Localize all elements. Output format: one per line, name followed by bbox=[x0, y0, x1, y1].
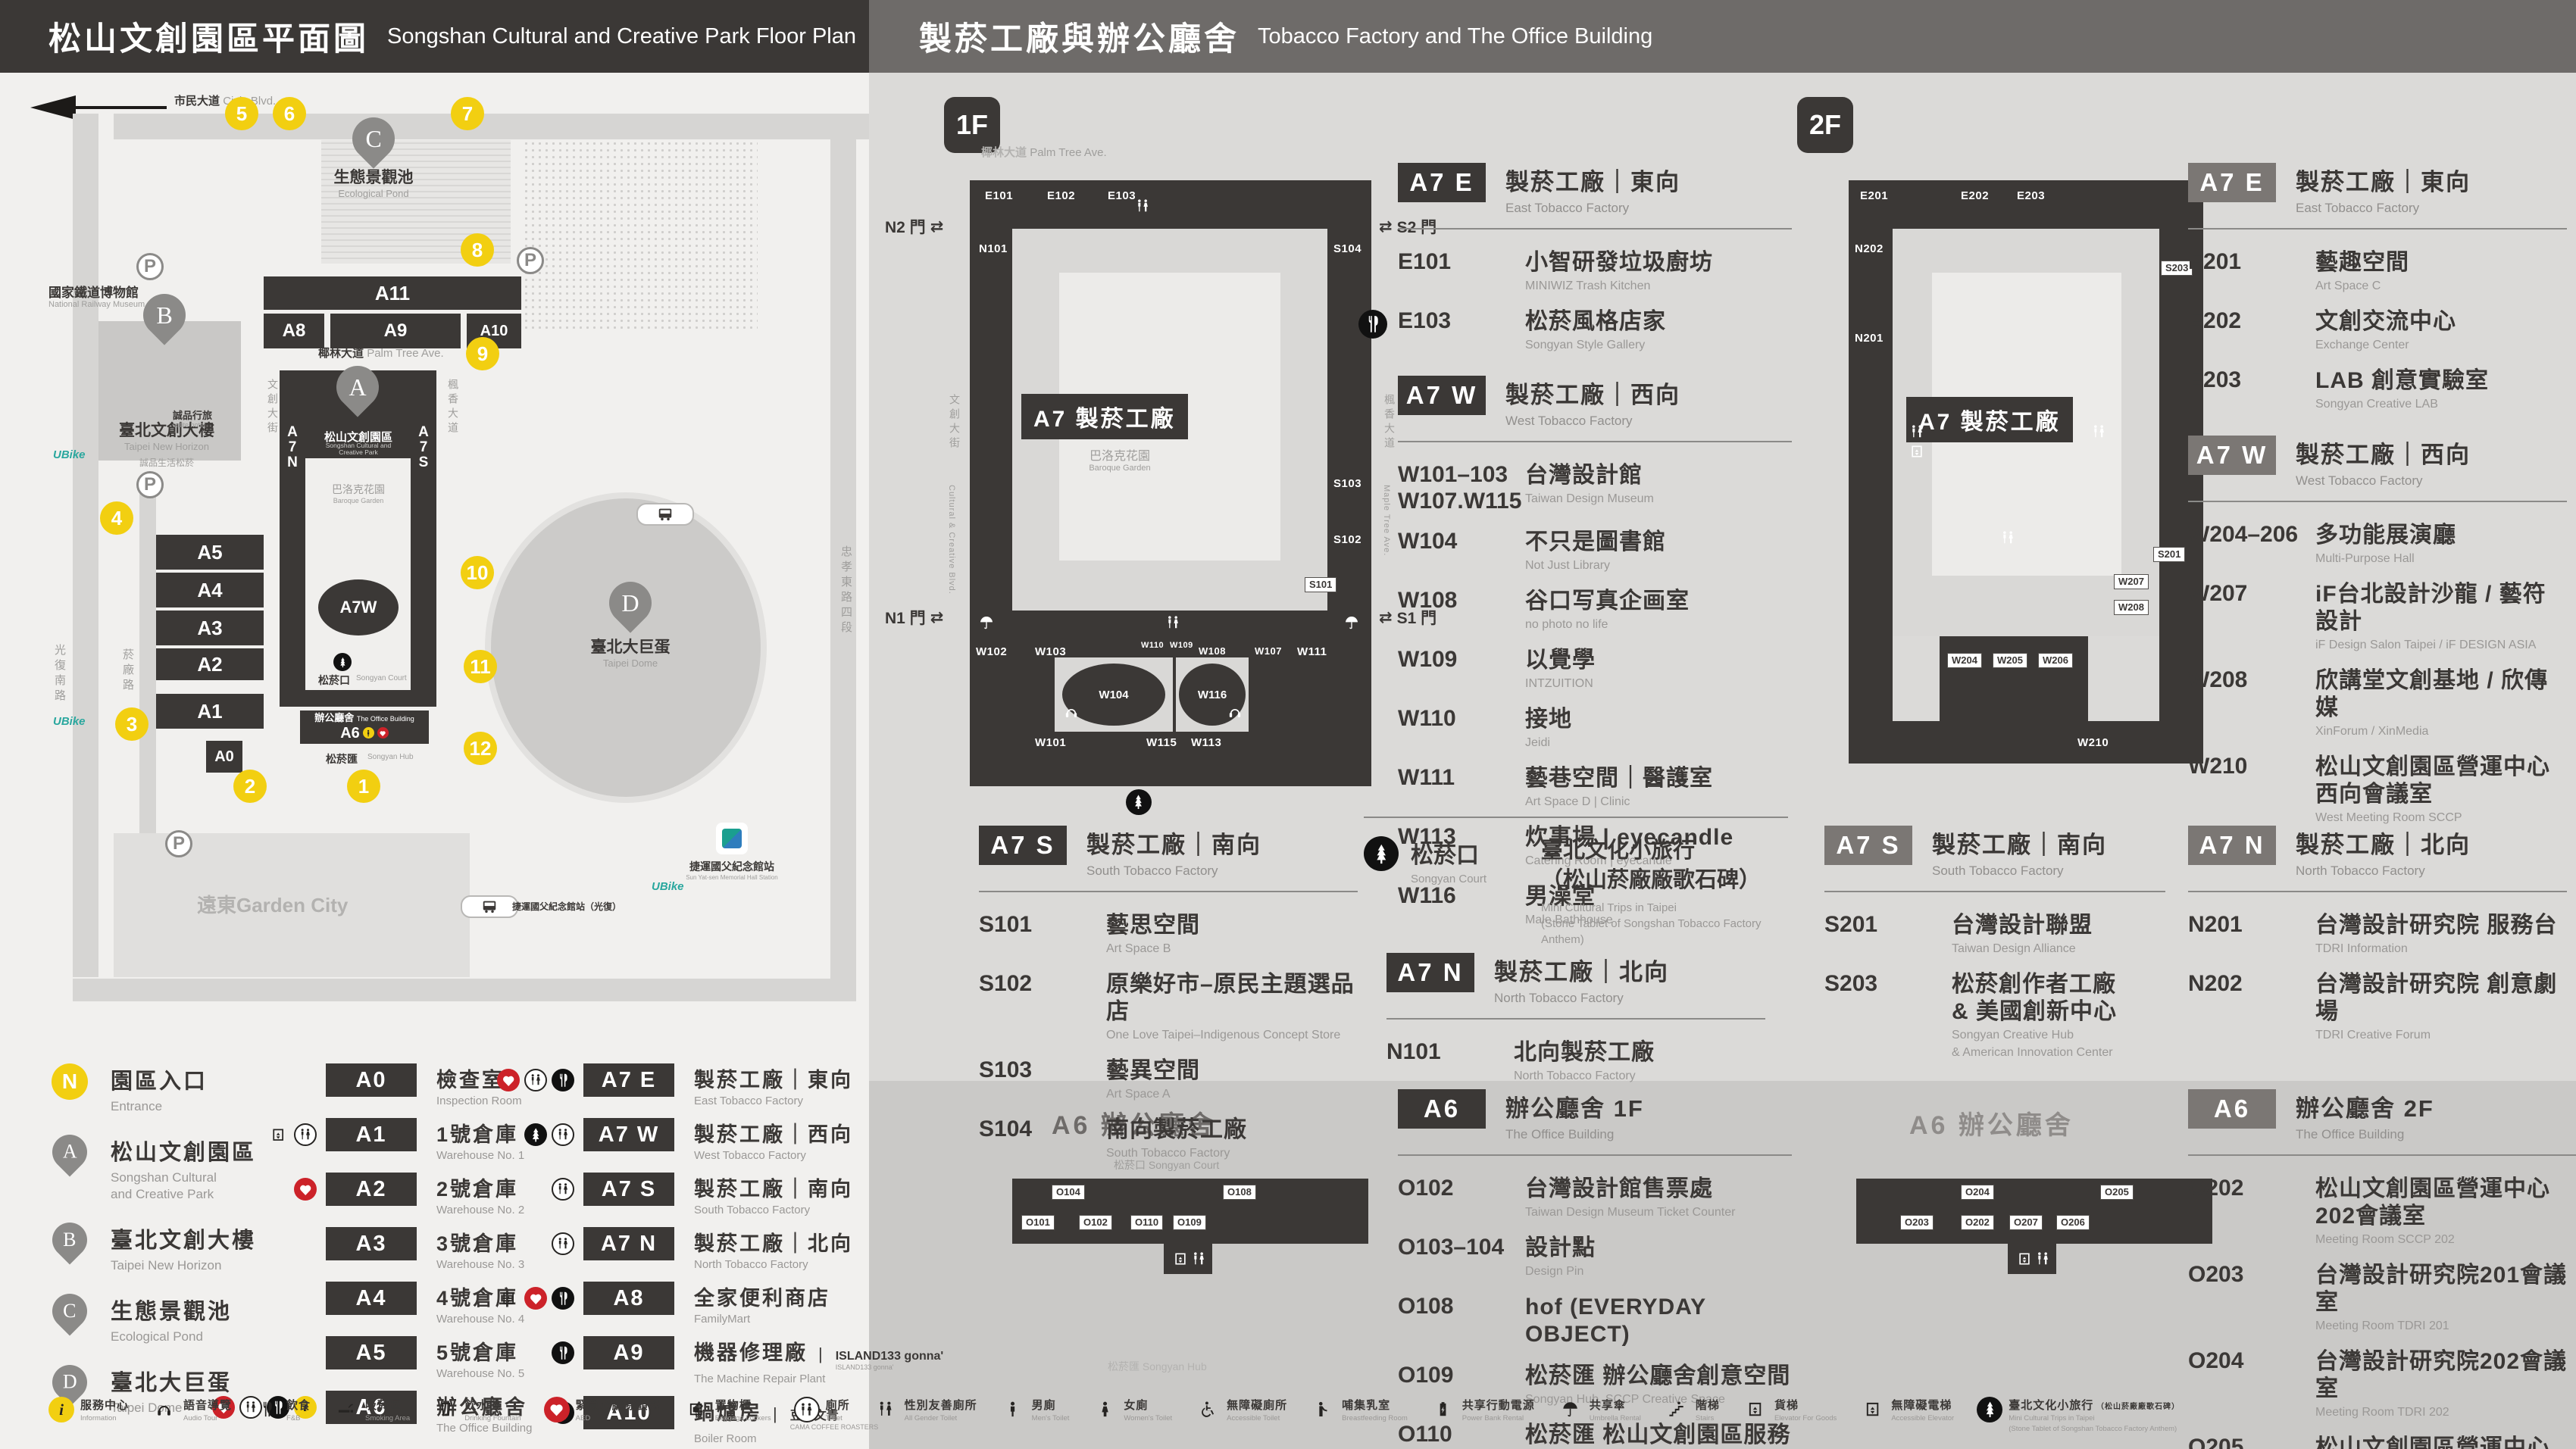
legend-building-en: FamilyMart bbox=[694, 1313, 830, 1326]
room-name-en: TDRI Creative Forum bbox=[2315, 1028, 2567, 1043]
plan1f-baroque-en: Baroque Garden bbox=[1067, 464, 1173, 473]
room-name: hof (EVERYDAY OBJECT) bbox=[1525, 1294, 1792, 1348]
legend-building-text: 全家便利商店FamilyMart bbox=[694, 1282, 830, 1326]
room-name-en: TDRI Information bbox=[2315, 942, 2557, 957]
map-building-a7n: A 7 N bbox=[280, 402, 305, 493]
section-title-en: East Tobacco Factory bbox=[1505, 201, 1680, 216]
list-item: E101小智研發垃圾廚坊MINIWIZ Trash Kitchen bbox=[1398, 249, 1792, 294]
info-icon: i bbox=[48, 1397, 74, 1422]
nursing-icon bbox=[1310, 1397, 1336, 1422]
label-pond-zh: 生態景觀池 bbox=[305, 165, 442, 188]
entrance-3: 3 bbox=[115, 707, 148, 741]
room-code: O202 bbox=[2188, 1176, 2315, 1248]
room-name-zh: 台灣設計研究院202會議室 bbox=[2315, 1348, 2576, 1403]
section-title-en: East Tobacco Factory bbox=[2296, 201, 2471, 216]
strip-item-text: 男廁Men's Toilet bbox=[1032, 1397, 1070, 1423]
legend-building-zh: 製菸工廠｜東向 bbox=[694, 1063, 853, 1093]
room-name-zh: 松菸創作者工廠 bbox=[1952, 971, 2117, 998]
list-item: W109以覺學INTZUITION bbox=[1398, 647, 1792, 692]
room-name: 台灣設計研究院 服務台TDRI Information bbox=[2315, 912, 2557, 957]
section-badge: A7 E bbox=[2188, 163, 2276, 202]
court-icon bbox=[524, 1123, 547, 1146]
room-name-en: Art Space D | Clinic bbox=[1525, 795, 1713, 810]
strip-item-text: 共享傘Umbrella Rental bbox=[1590, 1397, 1641, 1423]
list-item: W111藝巷空間｜醫護室Art Space D | Clinic bbox=[1398, 765, 1792, 810]
room-code: W207 bbox=[2188, 581, 2315, 653]
legend-building-en: The Machine Repair Plant bbox=[694, 1372, 943, 1385]
court-line-zh: 臺北文化小旅行（松山菸廠廠歌石碑） bbox=[1541, 836, 1788, 895]
room-name-zh: 欣講堂文創基地 / 欣傳媒 bbox=[2315, 667, 2567, 722]
garden-city-label: 遠東Garden City bbox=[197, 890, 348, 918]
map-building-a7w: A7W bbox=[318, 579, 399, 635]
list-item: W108谷口写真企画室no photo no life bbox=[1398, 588, 1792, 632]
map-hub-en: Songyan Hub bbox=[367, 753, 414, 761]
room-label-box: O205 bbox=[2100, 1185, 2134, 1200]
room-label-box: W204 bbox=[1947, 653, 1982, 668]
legend-building-badge: A9 bbox=[583, 1336, 674, 1369]
strip-item-zh: 廁所 bbox=[826, 1397, 850, 1413]
section-divider bbox=[1398, 1154, 1792, 1156]
strip-item: 女廁Women's Toilet bbox=[1092, 1397, 1172, 1423]
entrance-4: 4 bbox=[100, 501, 133, 535]
room-label-box: O104 bbox=[1052, 1185, 1085, 1200]
strip-item-text: 吸菸區Smoking Area bbox=[365, 1397, 410, 1423]
room-name-zh: 台灣設計聯盟 bbox=[1952, 912, 2093, 939]
legend-place-zh: 園區入口 bbox=[111, 1063, 208, 1095]
room-name-en: Not Just Library bbox=[1525, 558, 1666, 573]
section-header: A7 W製菸工廠｜西向West Tobacco Factory bbox=[1398, 376, 1792, 429]
room-name-zh: 北向製菸工廠 bbox=[1514, 1039, 1655, 1066]
room-name-zh: 接地 bbox=[1525, 706, 1572, 733]
plan2f-east-wing bbox=[1849, 180, 2203, 229]
strip-item-zh: 女廁 bbox=[1124, 1397, 1172, 1413]
strip-item-en: Stairs bbox=[1696, 1414, 1720, 1423]
stairs-icon bbox=[1664, 1397, 1690, 1422]
legend-building-text: 製菸工廠｜南向South Tobacco Factory bbox=[694, 1173, 853, 1216]
list-item: O102台灣設計館售票處Taiwan Design Museum Ticket … bbox=[1398, 1176, 1792, 1220]
strip-item-text: 緊急心臟除顫器AED bbox=[576, 1397, 661, 1423]
strip-item-en: Information bbox=[80, 1414, 129, 1423]
section-header: A7 N製菸工廠｜北向North Tobacco Factory bbox=[1386, 953, 1765, 1006]
map-building-a9: A9 bbox=[330, 314, 461, 348]
strip-item-text: 女廁Women's Toilet bbox=[1124, 1397, 1172, 1423]
strip-item-text: 無障礙廁所Accessible Toilet bbox=[1227, 1397, 1287, 1423]
label-eslite-hotel-zh: 誠品行旅 bbox=[173, 408, 212, 422]
strip-item: 緊急心臟除顫器AED bbox=[544, 1397, 661, 1423]
room-name: 谷口写真企画室no photo no life bbox=[1525, 588, 1690, 632]
room-name: 以覺學INTZUITION bbox=[1525, 647, 1596, 692]
section-a7s-1f: A7 S製菸工廠｜南向South Tobacco FactoryS101藝思空間… bbox=[979, 826, 1358, 1176]
room-name: 藝思空間Art Space B bbox=[1106, 912, 1200, 957]
section-title-zh: 辦公廳舍 1F bbox=[1505, 1089, 1644, 1123]
room-label: N101 bbox=[979, 242, 1008, 255]
legend-building-badge: A1 bbox=[326, 1118, 417, 1151]
section-divider bbox=[1386, 1018, 1765, 1020]
strip-item: i服務中心Information bbox=[48, 1397, 129, 1423]
room-name-en: Art Space B bbox=[1106, 942, 1200, 957]
room-name: 台灣設計聯盟Taiwan Design Alliance bbox=[1952, 912, 2093, 957]
room-code: W108 bbox=[1398, 588, 1525, 632]
section-title: 製菸工廠｜西向West Tobacco Factory bbox=[1505, 376, 1680, 429]
map-building-a4: A4 bbox=[156, 573, 264, 607]
list-item: E103松菸風格店家Songyan Style Gallery bbox=[1398, 308, 1792, 353]
elevator-icon bbox=[1173, 1251, 1188, 1266]
section-title-zh: 製菸工廠｜東向 bbox=[1505, 163, 1680, 197]
section-header: A7 N製菸工廠｜北向North Tobacco Factory bbox=[2188, 826, 2567, 879]
strip-item: 語音導覽Audio Tour bbox=[152, 1397, 232, 1423]
aed-icon bbox=[377, 727, 389, 739]
strip-item-en: Toilet bbox=[826, 1414, 850, 1423]
room-name-zh2: 西向會議室 bbox=[2315, 781, 2550, 808]
youbike-mark: UBike bbox=[53, 715, 86, 728]
room-label: W109 bbox=[1170, 641, 1193, 650]
legend-building-text: 製菸工廠｜西向West Tobacco Factory bbox=[694, 1118, 853, 1162]
section-title-zh: 製菸工廠｜北向 bbox=[1494, 953, 1669, 987]
section-a7s-2f: A7 S製菸工廠｜南向South Tobacco FactoryS201台灣設計… bbox=[1824, 826, 2165, 1075]
legend-building-en: East Tobacco Factory bbox=[694, 1095, 853, 1107]
section-title: 製菸工廠｜北向North Tobacco Factory bbox=[2296, 826, 2471, 879]
legend-building-en: North Tobacco Factory bbox=[694, 1258, 853, 1271]
room-code: W208 bbox=[2188, 667, 2315, 739]
strip-item-zh: 階梯 bbox=[1696, 1397, 1720, 1413]
section-badge: A7 E bbox=[1398, 163, 1486, 202]
room-label: E203 bbox=[2017, 189, 2045, 202]
room-label-box: O204 bbox=[1961, 1185, 1994, 1200]
strip-item-en: Audio Tour bbox=[183, 1414, 232, 1423]
entrance-10: 10 bbox=[461, 556, 494, 589]
map-baroque-en: Baroque Garden bbox=[314, 497, 403, 504]
section-header: A6辦公廳舍 2FThe Office Building bbox=[2188, 1089, 2576, 1142]
room-name: 松山文創園區營運中心202會議室Meeting Room SCCP 202 bbox=[2315, 1176, 2576, 1248]
section-title-en: West Tobacco Factory bbox=[2296, 473, 2471, 489]
section-title-zh: 辦公廳舍 2F bbox=[2296, 1089, 2434, 1123]
strip-item-zh: 置物櫃 bbox=[715, 1397, 771, 1413]
room-name: 小智研發垃圾廚坊MINIWIZ Trash Kitchen bbox=[1525, 249, 1713, 294]
room-code: S102 bbox=[979, 971, 1106, 1043]
legend-icon-cluster bbox=[470, 1118, 583, 1151]
strip-item-zh: 服務中心 bbox=[80, 1397, 129, 1413]
room-name-zh: 松菸匯 辦公廳舍創意空間 bbox=[1525, 1363, 1790, 1390]
list-item: W110接地Jeidi bbox=[1398, 706, 1792, 751]
legend-building-badge: A8 bbox=[583, 1282, 674, 1315]
room-label: S104 bbox=[1333, 242, 1361, 255]
section-divider bbox=[2188, 228, 2567, 230]
strip-item-en: Elevator For Goods bbox=[1774, 1414, 1837, 1423]
a6-2f-building bbox=[1856, 1179, 2212, 1244]
brand-separator: | bbox=[818, 1344, 825, 1364]
room-code: N201 bbox=[2188, 912, 2315, 957]
section-title: 辦公廳舍 1FThe Office Building bbox=[1505, 1089, 1644, 1142]
strip-item: 貨梯Elevator For Goods bbox=[1743, 1397, 1837, 1423]
room-name-zh: 以覺學 bbox=[1525, 647, 1596, 674]
info-icon bbox=[363, 727, 374, 739]
plan2f-big-label: A7 製菸工廠 bbox=[1906, 397, 2073, 442]
map-building-a3: A3 bbox=[156, 611, 264, 645]
room-name: 松菸創作者工廠& 美國創新中心Songyan Creative Hub& Ame… bbox=[1952, 971, 2117, 1060]
strip-item-zh: 緊急心臟除顫器 bbox=[576, 1397, 661, 1413]
room-code: W110 bbox=[1398, 706, 1525, 751]
list-item: O205松山文創園區營運中心201會議室Meeting Room SCCP 20… bbox=[2188, 1435, 2576, 1449]
legend-building-row: A7 E製菸工廠｜東向East Tobacco Factory bbox=[470, 1063, 943, 1107]
list-item: N201台灣設計研究院 服務台TDRI Information bbox=[2188, 912, 2567, 957]
strip-item-text: 階梯Stairs bbox=[1696, 1397, 1720, 1423]
strip-item-text: 飲水機Drinking Fountain bbox=[464, 1397, 521, 1423]
room-name-en: no photo no life bbox=[1525, 617, 1690, 632]
legend-pin: C bbox=[45, 1287, 94, 1336]
room-code: O203 bbox=[2188, 1262, 2315, 1334]
room-code: W204–206 bbox=[2188, 522, 2315, 567]
map-court-en: Songyan Court bbox=[356, 674, 407, 682]
room-name-zh: 松山文創園區營運中心201會議室 bbox=[2315, 1435, 2576, 1449]
legend-building-zh: 全家便利商店 bbox=[694, 1282, 830, 1311]
room-code: O205 bbox=[2188, 1435, 2315, 1449]
parking-icon: P bbox=[517, 247, 544, 274]
map-building-a0: A0 bbox=[206, 741, 242, 773]
room-label-box: W206 bbox=[2038, 653, 2073, 668]
label-mrt-exit: 捷運國父紀念館站（光復） bbox=[512, 900, 621, 913]
aed-icon bbox=[294, 1178, 317, 1201]
strip-item-en: F&B bbox=[286, 1414, 311, 1423]
toilet-icon bbox=[2091, 424, 2106, 439]
list-item: E202文創交流中心Exchange Center bbox=[2188, 308, 2567, 353]
list-item: S103藝異空間Art Space A bbox=[979, 1057, 1358, 1102]
section-title-zh: 製菸工廠｜南向 bbox=[1932, 826, 2107, 860]
room-name: 欣講堂文創基地 / 欣傳媒XinForum / XinMedia bbox=[2315, 667, 2567, 739]
map-building-a1: A1 bbox=[156, 694, 264, 729]
strip-item-en: Accessible Elevator bbox=[1891, 1414, 1954, 1423]
room-label: W101 bbox=[1035, 736, 1066, 749]
legend-icon-cluster bbox=[470, 1227, 583, 1260]
room-code: S101 bbox=[979, 912, 1106, 957]
room-name-zh: 設計點 bbox=[1525, 1235, 1596, 1262]
entrance-7: 7 bbox=[451, 97, 484, 130]
entrance-9: 9 bbox=[466, 337, 499, 370]
list-item: W210松山文創園區營運中心西向會議室West Meeting Room SCC… bbox=[2188, 754, 2567, 826]
strip-item-en2: (Stone Tablet of Songshan Tobacco Factor… bbox=[2009, 1425, 2180, 1434]
room-name-en: iF Design Salon Taipei / iF DESIGN ASIA bbox=[2315, 638, 2567, 653]
map-pin-marker: C bbox=[48, 1294, 91, 1329]
room-code: O102 bbox=[1398, 1176, 1525, 1220]
court-line-en: Mini Cultural Trips in Taipei(Stone Tabl… bbox=[1541, 900, 1788, 948]
room-name: 台灣設計館Taiwan Design Museum bbox=[1525, 462, 1654, 514]
room-code: E103 bbox=[1398, 308, 1525, 353]
strip-item: 男廁Men's Toilet bbox=[1000, 1397, 1070, 1423]
strip-item-zh: 無障礙電梯 bbox=[1891, 1397, 1954, 1413]
section-title-en: Tobacco Factory and The Office Building bbox=[1258, 24, 1652, 49]
section-a7n-2f: A7 N製菸工廠｜北向North Tobacco FactoryN201台灣設計… bbox=[2188, 826, 2567, 1057]
strip-item-text: 廁所Toilet bbox=[826, 1397, 850, 1423]
toilet-icon bbox=[552, 1178, 574, 1201]
room-name-zh: 台灣設計研究院 服務台 bbox=[2315, 912, 2557, 939]
map-pin-marker: A bbox=[48, 1135, 91, 1170]
label-dome-en: Taipei Dome bbox=[562, 657, 699, 669]
room-code: O204 bbox=[2188, 1348, 2315, 1420]
legend-building-badge: A7 E bbox=[583, 1063, 674, 1097]
room-name-en: Art Space A bbox=[1106, 1087, 1200, 1102]
map-ring-east-wall bbox=[411, 493, 436, 690]
elevator-icon bbox=[2017, 1251, 2032, 1266]
section-title-en: West Tobacco Factory bbox=[1505, 414, 1680, 429]
legend-building-text: 製菸工廠｜東向East Tobacco Factory bbox=[694, 1063, 853, 1107]
legend-building-badge: A5 bbox=[326, 1336, 417, 1369]
map-court-zh: 松菸口 bbox=[318, 673, 350, 688]
list-item: S101藝思空間Art Space B bbox=[979, 912, 1358, 957]
strip-item-en: Baggage Lockers bbox=[715, 1414, 771, 1423]
section-a6-2f: A6辦公廳舍 2FThe Office BuildingO202松山文創園區營運… bbox=[2188, 1089, 2576, 1449]
powerbank-icon bbox=[1430, 1397, 1456, 1422]
strip-item-text: 置物櫃Baggage Lockers bbox=[715, 1397, 771, 1423]
room-label-box: W205 bbox=[1993, 653, 2027, 668]
toilet-icon bbox=[1909, 424, 1924, 439]
room-name: 藝異空間Art Space A bbox=[1106, 1057, 1200, 1102]
goods-elevator-icon bbox=[1743, 1397, 1768, 1422]
court-title-zh: 松菸口 bbox=[1411, 836, 1529, 870]
water-icon bbox=[433, 1397, 458, 1422]
map-building-a2: A2 bbox=[156, 648, 264, 680]
strip-item: 臺北文化小旅行 （松山菸廠廠歌石碑）Mini Cultural Trips in… bbox=[1977, 1397, 2180, 1435]
toilet-icon bbox=[552, 1232, 574, 1255]
strip-item-zh: 無障礙廁所 bbox=[1227, 1397, 1287, 1413]
room-name-zh: hof (EVERYDAY OBJECT) bbox=[1525, 1294, 1792, 1348]
strip-item-en: Accessible Toilet bbox=[1227, 1414, 1287, 1423]
section-title-zh: 製菸工廠｜南向 bbox=[1086, 826, 1261, 860]
elevator-icon bbox=[497, 1287, 520, 1310]
toilet-icon bbox=[1135, 198, 1150, 214]
section-badge: A7 N bbox=[1386, 953, 1474, 992]
room-name: 台灣設計研究院202會議室Meeting Room TDRI 202 bbox=[2315, 1348, 2576, 1420]
minitrip-icon bbox=[1977, 1397, 2002, 1422]
list-item: E201藝趣空間Art Space C bbox=[2188, 249, 2567, 294]
room-name-en: Multi-Purpose Hall bbox=[2315, 551, 2456, 567]
strip-item-en: Breastfeeding Room bbox=[1342, 1414, 1408, 1423]
legend-building-row: A9機器修理廠|ISLAND133 gonna'ISLAND133 gonna'… bbox=[470, 1336, 943, 1385]
room-code: W111 bbox=[1398, 765, 1525, 810]
legend-icon-cluster bbox=[470, 1063, 583, 1097]
legend-building-row: A7 W製菸工廠｜西向West Tobacco Factory bbox=[470, 1118, 943, 1162]
legend-building-badge: A0 bbox=[326, 1063, 417, 1097]
section-badge: A7 S bbox=[1824, 826, 1912, 865]
plan1f-baroque-zh: 巴洛克花園 bbox=[1067, 445, 1173, 464]
toilet-icon bbox=[2000, 530, 2015, 545]
allgender-icon bbox=[873, 1397, 899, 1422]
label-railway-zh: 國家鐵道博物館 bbox=[48, 282, 139, 301]
section-divider bbox=[2188, 891, 2567, 892]
legend-icon-cluster bbox=[470, 1173, 583, 1206]
legend-building-badge: A3 bbox=[326, 1227, 417, 1260]
elevator-icon bbox=[267, 1123, 289, 1146]
map-building-a6: 辦公廳舍 The Office Building A6 bbox=[300, 710, 429, 744]
room-label: W107 bbox=[1255, 645, 1282, 657]
audio-guide-icon bbox=[1064, 704, 1079, 720]
list-item: N101北向製菸工廠North Tobacco Factory bbox=[1386, 1039, 1765, 1084]
legend-building-zh: 製菸工廠｜西向 bbox=[694, 1118, 853, 1148]
section-title-en: North Tobacco Factory bbox=[1494, 991, 1669, 1006]
legend-icon-cluster bbox=[212, 1173, 326, 1206]
room-code: E101 bbox=[1398, 249, 1525, 294]
strip-item: 階梯Stairs bbox=[1664, 1397, 1720, 1423]
section-title-en: South Tobacco Factory bbox=[1932, 863, 2107, 879]
room-name: 藝趣空間Art Space C bbox=[2315, 249, 2409, 294]
section-title-zh: 製菸工廠與辦公廳舍 bbox=[919, 13, 1240, 60]
room-name: 原樂好市–原民主題選品店One Love Taipei–Indigenous C… bbox=[1106, 971, 1358, 1043]
section-title-en: North Tobacco Factory bbox=[2296, 863, 2471, 879]
strip-item-text: 飲食F&B bbox=[286, 1397, 311, 1423]
parking-icon: P bbox=[136, 253, 164, 280]
list-item: E203LAB 創意實驗室Songyan Creative LAB bbox=[2188, 367, 2567, 412]
room-label: N201 bbox=[1855, 332, 1884, 345]
room-label-box: S201 bbox=[2153, 547, 2185, 562]
map-ring-bottom bbox=[280, 690, 436, 707]
room-label-box: S101 bbox=[1305, 577, 1336, 592]
legend-building-zh: 機器修理廠|ISLAND133 gonna'ISLAND133 gonna' bbox=[694, 1336, 943, 1371]
map-pin-marker: D bbox=[48, 1365, 91, 1400]
map-hub-zh: 松菸匯 bbox=[326, 751, 358, 767]
parking-icon: P bbox=[165, 830, 192, 857]
strip-item-zh: 飲水機 bbox=[464, 1397, 521, 1413]
section-title: 製菸工廠｜西向West Tobacco Factory bbox=[2296, 436, 2471, 489]
list-item: O204台灣設計研究院202會議室Meeting Room TDRI 202 bbox=[2188, 1348, 2576, 1420]
umbrella-icon bbox=[1344, 615, 1359, 630]
room-name-zh: 不只是圖書館 bbox=[1525, 529, 1666, 556]
room-name: 台灣設計館售票處Taiwan Design Museum Ticket Coun… bbox=[1525, 1176, 1735, 1220]
strip-item: 飲水機Drinking Fountain bbox=[433, 1397, 521, 1423]
room-code: S203 bbox=[1824, 971, 1952, 1060]
brand-label: ISLAND133 gonna'ISLAND133 gonna' bbox=[836, 1350, 944, 1371]
section-badge: A7 S bbox=[979, 826, 1067, 865]
plan1f-east-wing bbox=[970, 180, 1371, 229]
street-maple-ave: 楓香大道 bbox=[445, 379, 461, 436]
section-header: A7 E製菸工廠｜東向East Tobacco Factory bbox=[2188, 163, 2567, 216]
legend-building-row: A7 N製菸工廠｜北向North Tobacco Factory bbox=[470, 1227, 943, 1271]
toilet-icon bbox=[794, 1397, 820, 1422]
room-code: S103 bbox=[979, 1057, 1106, 1102]
legend-building-en: South Tobacco Factory bbox=[694, 1204, 853, 1216]
section-title-zh: 製菸工廠｜西向 bbox=[2296, 436, 2471, 470]
strip-item-text: 貨梯Elevator For Goods bbox=[1774, 1397, 1837, 1423]
room-label-box: O109 bbox=[1173, 1215, 1206, 1230]
room-name: 藝巷空間｜醫護室Art Space D | Clinic bbox=[1525, 765, 1713, 810]
room-code: W104 bbox=[1398, 529, 1525, 573]
court-title-en: Songyan Court bbox=[1411, 873, 1529, 885]
room-name: 南向製菸工廠South Tobacco Factory bbox=[1106, 1116, 1247, 1161]
page-title-en: Songshan Cultural and Creative Park Floo… bbox=[387, 24, 856, 49]
plan1f-maple-ave: 楓香大道 bbox=[1382, 394, 1397, 451]
room-label: W102 bbox=[976, 645, 1007, 658]
legend-building-row: A8全家便利商店FamilyMart bbox=[470, 1282, 943, 1326]
list-item: W207iF台北設計沙龍 / 藝符設計iF Design Salon Taipe… bbox=[2188, 581, 2567, 653]
room-code: N101 bbox=[1386, 1039, 1514, 1084]
section-badge: A7 W bbox=[1398, 376, 1486, 415]
strip-item-text: 語音導覽Audio Tour bbox=[183, 1397, 232, 1423]
plan1f-big-label: A7 製菸工廠 bbox=[1021, 394, 1188, 439]
room-label-box: O202 bbox=[1961, 1215, 1994, 1230]
room-name-en: Songyan Style Gallery bbox=[1525, 338, 1666, 353]
room-code: S104 bbox=[979, 1116, 1106, 1161]
map-park-name-en: Songshan Cultural and Creative Park bbox=[308, 442, 409, 456]
room-name-en: Taiwan Design Museum bbox=[1525, 492, 1654, 507]
strip-item-zh: 語音導覽 bbox=[183, 1397, 232, 1413]
legend-building-badge: A7 W bbox=[583, 1118, 674, 1151]
room-name: iF台北設計沙龍 / 藝符設計iF Design Salon Taipei / … bbox=[2315, 581, 2567, 653]
room-code: O103–104 bbox=[1398, 1235, 1525, 1279]
section-a7n-1f: A7 N製菸工廠｜北向North Tobacco FactoryN101北向製菸… bbox=[1386, 953, 1765, 1098]
court-tree-icon bbox=[1364, 836, 1399, 871]
strip-item: 哺集乳室Breastfeeding Room bbox=[1310, 1397, 1408, 1423]
room-name-zh: 多功能展演廳 bbox=[2315, 522, 2456, 549]
map-ring-west-wall bbox=[280, 493, 305, 690]
strip-item-en: Smoking Area bbox=[365, 1414, 410, 1423]
bus-stop-icon bbox=[461, 895, 518, 918]
